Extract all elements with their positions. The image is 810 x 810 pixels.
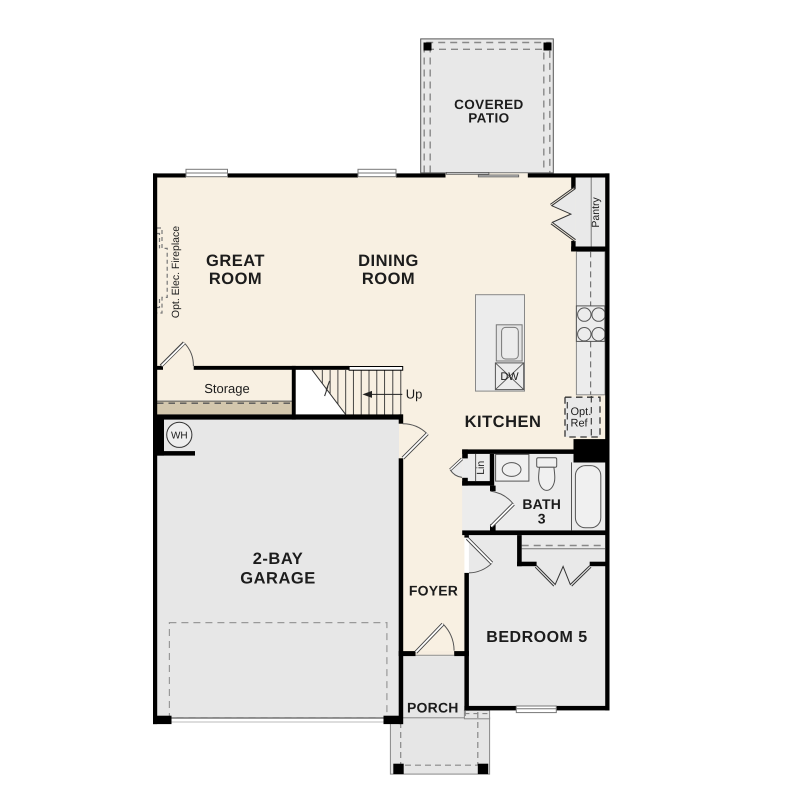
svg-text:Opt. Elec. Fireplace: Opt. Elec. Fireplace — [170, 226, 182, 318]
svg-text:Lin: Lin — [475, 461, 487, 475]
svg-text:2-BAY: 2-BAY — [253, 550, 304, 568]
svg-text:DW: DW — [500, 371, 519, 383]
svg-text:Storage: Storage — [204, 381, 250, 396]
svg-text:Pantry: Pantry — [590, 196, 602, 227]
svg-text:GREAT: GREAT — [206, 252, 265, 270]
svg-text:Ref: Ref — [571, 417, 589, 429]
svg-text:DINING: DINING — [358, 252, 419, 270]
svg-text:3: 3 — [538, 510, 546, 526]
svg-text:KITCHEN: KITCHEN — [465, 413, 542, 431]
svg-text:BEDROOM 5: BEDROOM 5 — [486, 629, 587, 646]
svg-text:WH: WH — [171, 431, 188, 442]
svg-text:Opt.: Opt. — [571, 406, 592, 418]
svg-text:ROOM: ROOM — [362, 270, 415, 288]
svg-text:PORCH: PORCH — [407, 700, 459, 716]
svg-text:GARAGE: GARAGE — [240, 569, 315, 587]
svg-text:ROOM: ROOM — [209, 270, 262, 288]
svg-text:FOYER: FOYER — [409, 583, 458, 599]
svg-text:PATIO: PATIO — [468, 111, 509, 126]
svg-text:Up: Up — [406, 387, 423, 402]
